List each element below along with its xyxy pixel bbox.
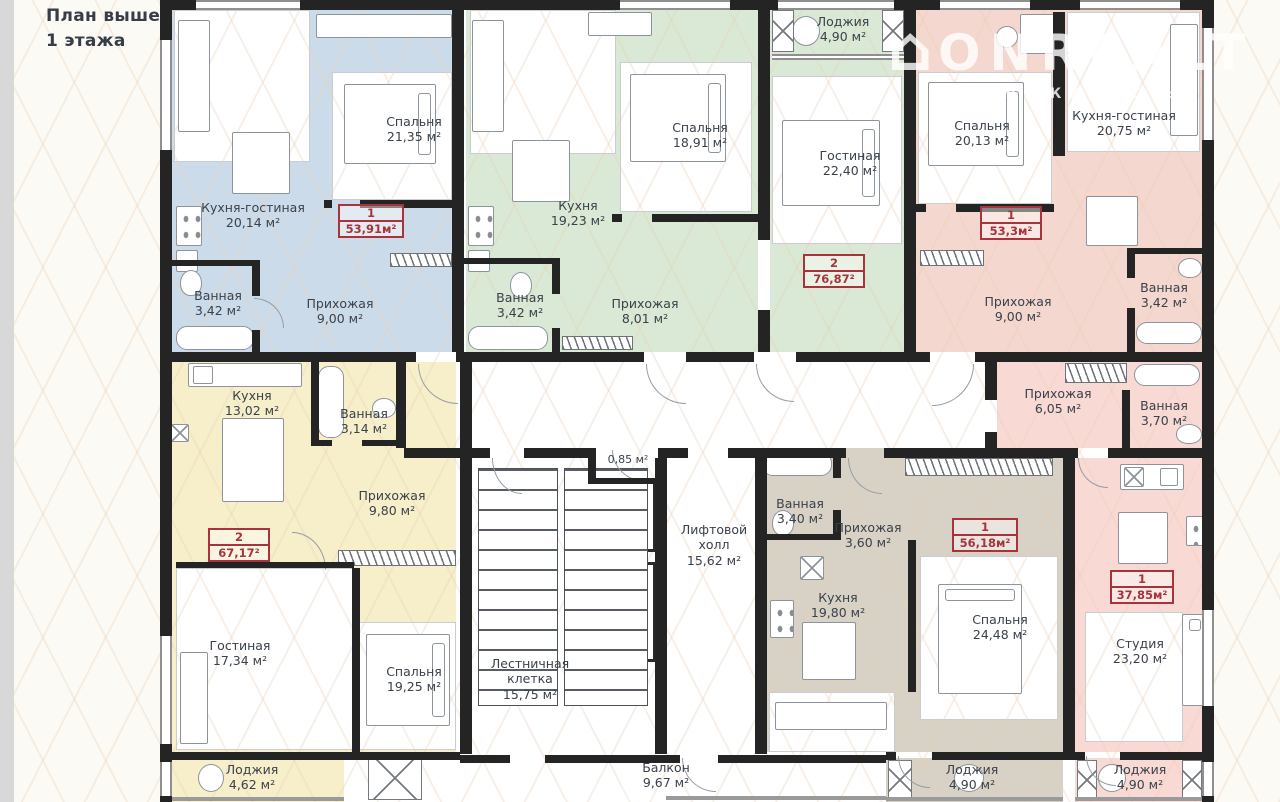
label-lift-hall: Лифтовойхолл15,62 м² [681, 522, 747, 568]
label-a-kitchen-living: Кухня-гостиная20,14 м² [201, 200, 305, 231]
a-tub-tub-icon [176, 326, 254, 350]
wall-19 [758, 310, 770, 352]
win-top-c-loggia [778, 0, 894, 10]
unitbox-rose-number: 1 [1112, 572, 1172, 588]
label-f-loggia: Лоджия4,90 м² [946, 762, 999, 793]
label-e-bedroom: Спальня19,25 м² [386, 664, 442, 695]
unitbox-gray-number: 1 [954, 520, 1016, 536]
win-left-a [160, 40, 172, 150]
wall-24 [1063, 448, 1075, 754]
label-a-hall: Прихожая9,00 м² [307, 296, 374, 327]
win-top-d1 [940, 0, 1030, 10]
wall-26 [985, 432, 997, 448]
label-c-loggia: Лоджия4,90 м² [817, 14, 870, 45]
win-top-b [620, 0, 730, 10]
label-stairwell: Лестничнаяклетка15,75 м² [491, 656, 569, 702]
wall-14 [588, 448, 596, 482]
g-bed-pillow-icon [1189, 619, 1201, 631]
a-stove-stove-icon [176, 206, 202, 246]
d-desk-chair-chair-icon [996, 26, 1018, 48]
wall-27 [1122, 390, 1130, 448]
unitbox-rose-area: 37,85м² [1112, 588, 1172, 603]
floor-plan: Кухня-гостиная20,14 м²Спальня21,35 м²Ван… [0, 0, 1280, 802]
wall-29 [252, 260, 260, 296]
f-wardrobe [905, 458, 1053, 476]
wall-59 [886, 752, 896, 760]
unitbox-blue-number: 1 [340, 206, 402, 222]
unitbox-gray: 156,18м² [952, 518, 1018, 552]
wall-18 [758, 0, 770, 240]
wall-4 [456, 352, 644, 362]
a-table-table-icon [232, 132, 290, 194]
unitbox-gray-area: 56,18м² [954, 536, 1016, 551]
wall-40 [362, 440, 404, 446]
label-balcony: Балкон9,67 м² [642, 760, 690, 791]
d-wardrobe [920, 250, 984, 266]
wall-37 [311, 362, 319, 444]
e-loggia-chair-chair-icon [198, 764, 224, 792]
wall-11 [728, 448, 846, 458]
b-table-table-icon [512, 140, 570, 202]
d-toilet-wc-icon [1178, 258, 1202, 278]
label-e-bath: Ванная3,14 м² [340, 406, 388, 437]
photo-edge-strip [0, 0, 14, 802]
unitbox-pink: 153,3м² [980, 206, 1042, 240]
unitbox-blue-area: 53,91м² [340, 222, 402, 237]
c-loggia-pier-right [882, 10, 904, 52]
a-desk-desk-icon [316, 14, 452, 38]
label-f-bath: Ванная3,40 м² [776, 496, 824, 527]
win-top-a [196, 0, 300, 10]
wall-13 [1108, 448, 1214, 458]
label-g-bath: Ванная3,70 м² [1140, 398, 1188, 429]
f-bed-pillow-icon [945, 589, 1015, 601]
wall-10 [664, 448, 688, 458]
label-b-bath: Ванная3,42 м² [496, 290, 544, 321]
wall-61 [1063, 752, 1085, 760]
a-sofa-sofa-icon [178, 20, 210, 132]
b-wardrobe [562, 336, 633, 350]
wall-21 [460, 358, 472, 754]
wall-58 [718, 755, 886, 763]
wall-54 [160, 752, 460, 760]
wall-32 [552, 258, 560, 294]
label-c-living: Гостиная22,40 м² [820, 148, 881, 179]
wall-38 [396, 358, 406, 448]
d-table-table-icon [1086, 196, 1138, 246]
unitbox-yellow: 267,17² [208, 528, 270, 562]
e-wardrobe [338, 550, 456, 566]
wall-22 [655, 458, 667, 754]
e-sofa-sofa-icon [180, 652, 208, 744]
label-g-loggia: Лоджия4,90 м² [1114, 762, 1167, 793]
g-sink-sink-icon [1160, 468, 1178, 486]
stair-flight-right [564, 468, 648, 706]
wall-43 [324, 200, 332, 208]
unitbox-pink-number: 1 [982, 208, 1040, 224]
b-tub-tub-icon [468, 326, 548, 350]
b-desk-desk-icon [588, 12, 652, 36]
label-niche: 0,85 м² [608, 453, 649, 466]
unitbox-yellow-number: 2 [210, 530, 268, 546]
b-stove-stove-icon [468, 206, 494, 246]
win-left-e-loggia [160, 762, 172, 796]
wall-30 [252, 330, 260, 352]
a-wardrobe [390, 253, 452, 267]
wall-5 [686, 352, 754, 362]
wall-49 [1053, 12, 1065, 156]
wall-39 [311, 440, 332, 446]
label-f-kitchen: Кухня19,80 м² [811, 590, 865, 621]
wall-20 [904, 0, 916, 352]
label-e-loggia: Лоджия4,62 м² [226, 762, 279, 793]
wall-8 [404, 448, 490, 458]
wall-50 [833, 448, 841, 478]
wall-33 [552, 328, 560, 352]
e-washer-washer-icon [171, 424, 189, 442]
page-title-line1: План выше [46, 4, 160, 29]
label-b-kitchen: Кухня19,23 м² [551, 198, 605, 229]
unitbox-yellow-area: 67,17² [210, 546, 268, 561]
page-title: План выше 1 этажа [46, 4, 160, 53]
label-e-hall: Прихожая9,80 м² [359, 488, 426, 519]
label-b-hall: Прихожая8,01 м² [612, 296, 679, 327]
wall-42 [176, 562, 354, 568]
wall-52 [767, 534, 841, 540]
wall-25 [985, 358, 997, 400]
win-right-g [1202, 610, 1214, 706]
wall-34 [1133, 248, 1202, 254]
label-a-bedroom: Спальня21,35 м² [386, 114, 442, 145]
label-b-bedroom: Спальня18,91 м² [672, 120, 728, 151]
wall-53 [908, 540, 916, 692]
wall-3 [160, 352, 416, 362]
label-g-hall: Прихожая6,05 м² [1025, 386, 1092, 417]
label-f-bedroom: Спальня24,48 м² [972, 612, 1028, 643]
b-sofa-sofa-icon [472, 20, 504, 132]
label-d-bath: Ванная3,42 м² [1140, 280, 1188, 311]
wall-6 [796, 352, 930, 362]
g-washer-washer-icon [1124, 467, 1144, 487]
loggia-rail-2 [886, 797, 1063, 801]
loggia-rail-1 [666, 796, 886, 800]
wall-41 [352, 568, 360, 752]
wall-47 [916, 204, 926, 212]
f-sofa-sofa-icon [775, 702, 887, 730]
g-loggia-pier-right [1182, 760, 1202, 800]
unitbox-green: 276,87² [803, 254, 865, 288]
wall-23 [755, 448, 767, 754]
label-d-hall: Прихожая9,00 м² [985, 294, 1052, 325]
wall-45 [612, 214, 622, 222]
g-tub-tub-icon [1134, 364, 1200, 386]
label-g-studio: Студия23,20 м² [1113, 636, 1167, 667]
unitbox-pink-area: 53,3м² [982, 224, 1040, 239]
unitbox-green-number: 2 [805, 256, 863, 272]
e-table-table-icon [222, 418, 284, 502]
win-c-loggia-glazing [772, 54, 904, 60]
wall-31 [464, 258, 560, 264]
wall-35 [1127, 248, 1135, 278]
win-top-d2 [1080, 0, 1180, 10]
label-f-hall: Прихожая3,60 м² [835, 520, 902, 551]
wall-12 [884, 448, 1078, 458]
f-washer-washer-icon [800, 556, 824, 580]
g-studio-room [1085, 612, 1183, 742]
label-d-bedroom: Спальня20,13 м² [954, 118, 1010, 149]
wall-9 [524, 448, 592, 458]
label-e-living: Гостиная17,34 м² [210, 638, 271, 669]
wall-7 [975, 352, 1214, 362]
page-title-line2: 1 этажа [46, 29, 160, 54]
g-wardrobe [1065, 363, 1127, 383]
d-tub-tub-icon [1136, 322, 1202, 344]
loggia-rail-0 [172, 797, 344, 801]
label-e-kitchen: Кухня13,02 м² [225, 388, 279, 419]
unitbox-green-area: 76,87² [805, 272, 863, 287]
loggia-rail-3 [1075, 797, 1202, 801]
c-loggia-pier-left [772, 10, 794, 52]
g-table-table-icon [1118, 512, 1168, 564]
win-left-e [160, 636, 172, 744]
win-right-g-loggia [1202, 762, 1214, 796]
e-sink-sink-icon [193, 366, 213, 384]
wall-62 [1120, 752, 1202, 760]
wall-55 [460, 755, 510, 763]
wall-60 [932, 752, 1063, 760]
wall-28 [172, 260, 258, 266]
label-a-bath: Ванная3,42 м² [194, 288, 242, 319]
wall-46 [652, 214, 758, 222]
win-right-d [1202, 28, 1214, 140]
wall-36 [1127, 308, 1135, 352]
unitbox-blue: 153,91м² [338, 204, 404, 238]
wall-17 [452, 0, 464, 352]
label-d-kitchen-living: Кухня-гостиная20,75 м² [1072, 108, 1176, 139]
e-shaft [368, 756, 422, 800]
f-table-table-icon [802, 622, 856, 680]
f-stove-stove-icon [770, 600, 794, 638]
unitbox-rose: 137,85м² [1110, 570, 1174, 604]
